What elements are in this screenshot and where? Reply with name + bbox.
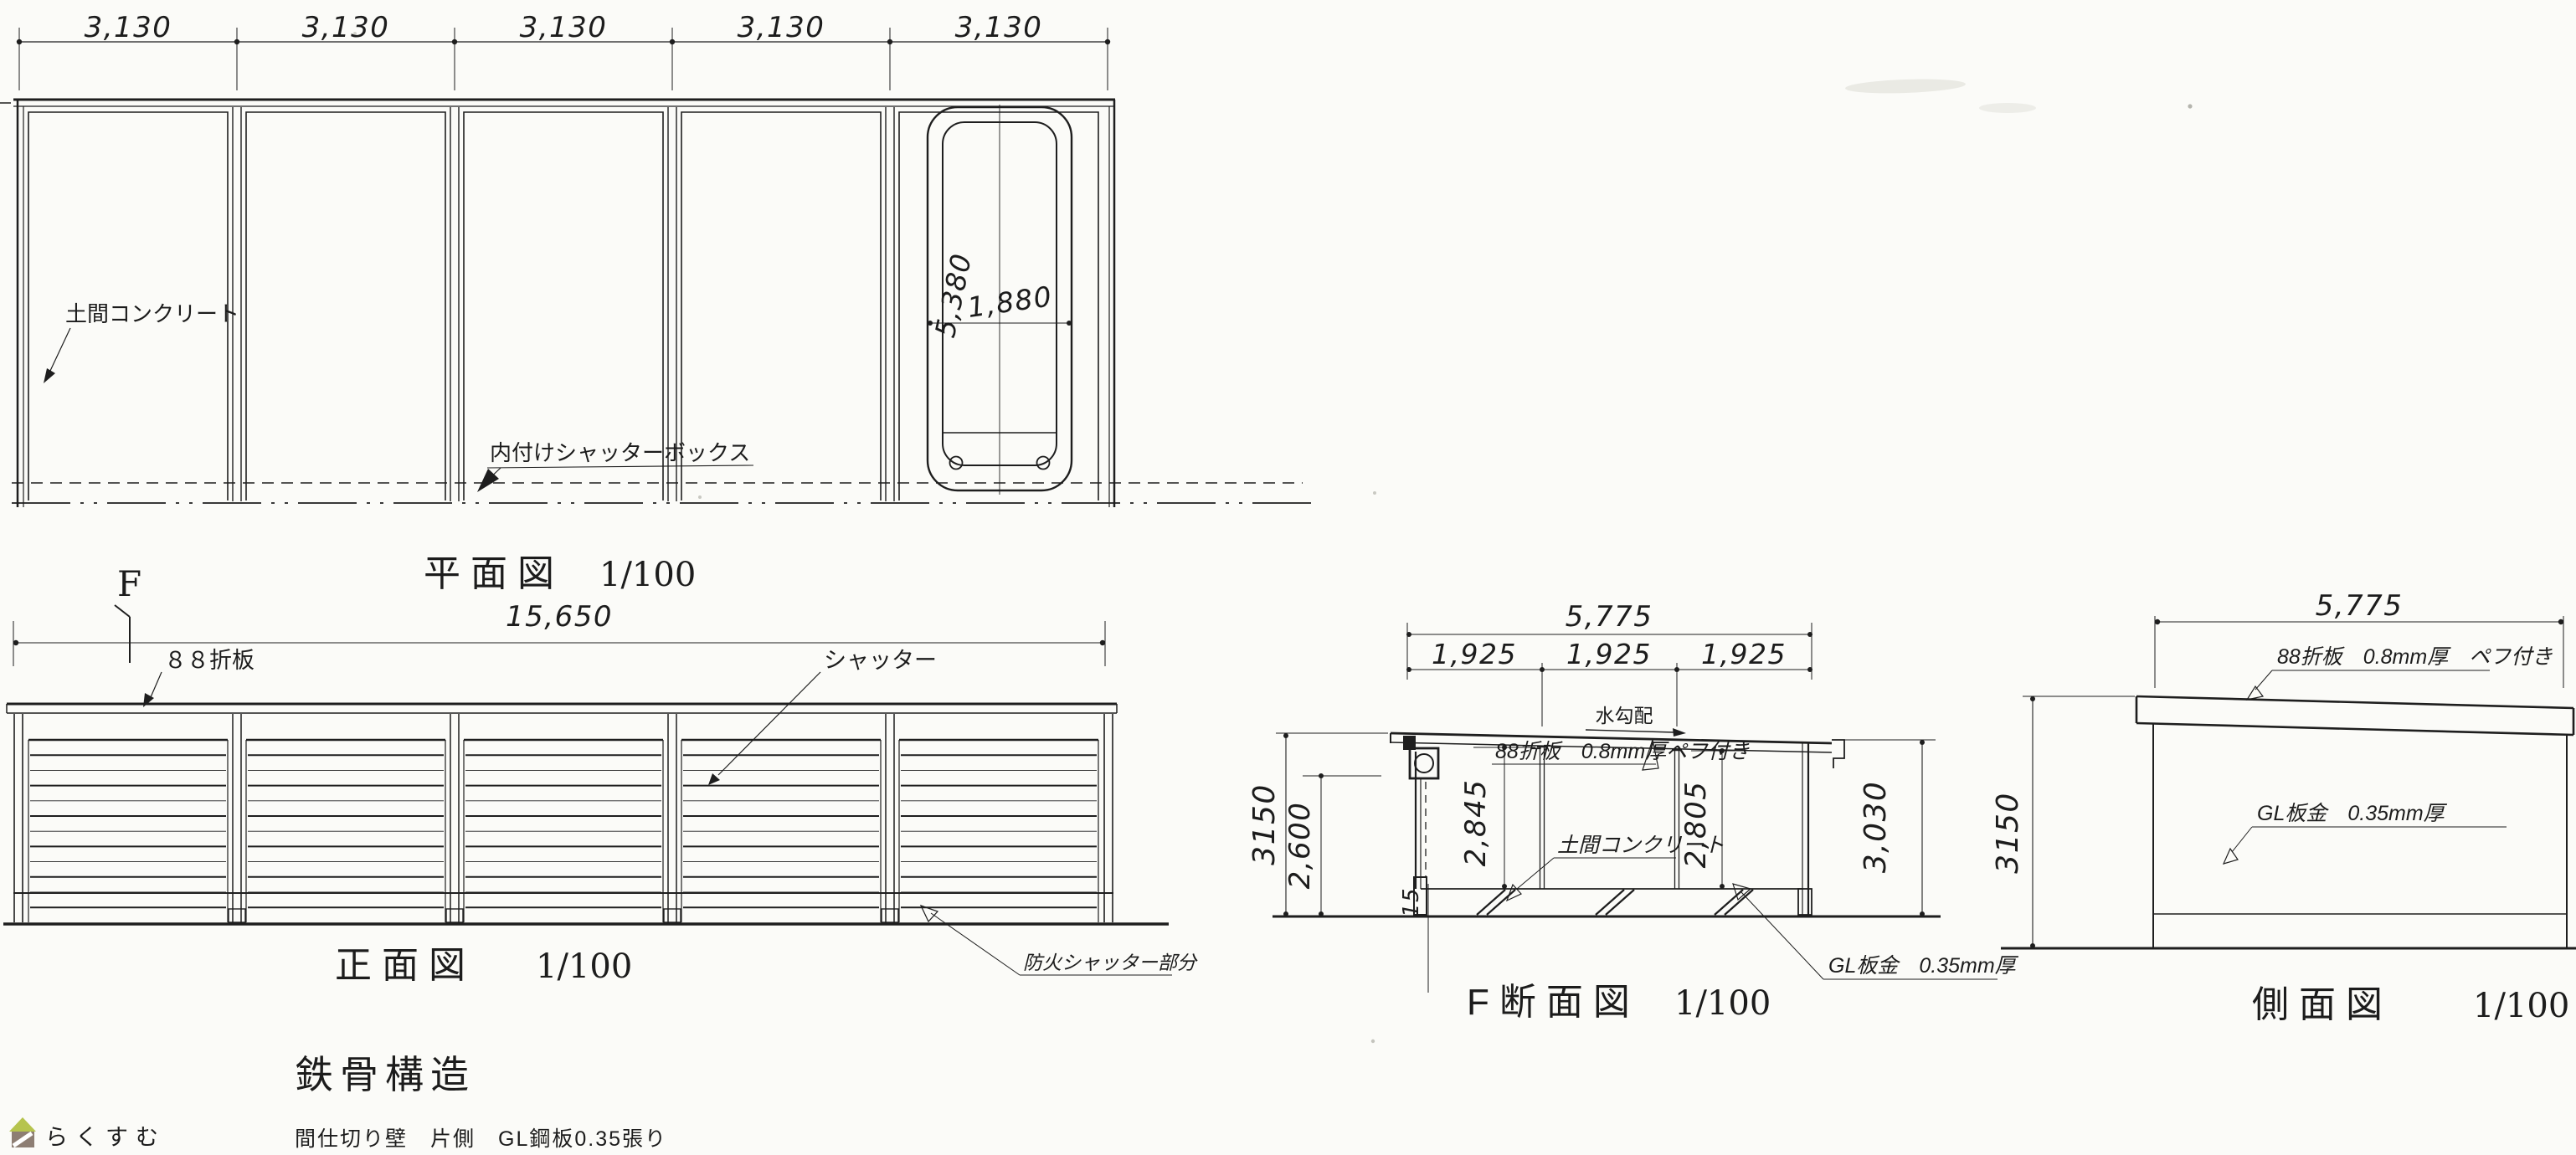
plan-title: 平面図 (424, 553, 564, 594)
section-shutter-box (1410, 748, 1438, 778)
plan-car-outline: 5,380 1,880 (928, 105, 1072, 495)
side-roof-callout: 88折板 0.8mm厚 ペフ付き (2247, 645, 2553, 700)
side-view: 5,775 88折板 0.8mm厚 ペフ付き GL板 (1991, 589, 2576, 1025)
section-roof-label2: ペフ付き (1666, 740, 1750, 763)
plan-bay-dim-1: 3,130 (85, 11, 172, 44)
section-height-outer-left: 3150 (1247, 783, 1282, 865)
front-overall-width: 15,650 (506, 600, 613, 634)
front-shutter-callout: シャッター (708, 648, 937, 785)
plan-slab-callout: 土間コンクリート (44, 301, 239, 383)
section-gutter (1832, 740, 1844, 768)
plan-bay-dim-3: 3,130 (520, 11, 608, 44)
section-mark-letter: F (117, 563, 141, 604)
plan-scale: 1/100 (599, 556, 696, 594)
section-scale: 1/100 (1674, 984, 1771, 1023)
section-interior-dims: 2,845 2,805 (1459, 745, 1753, 889)
side-roof (2136, 696, 2573, 735)
side-height-dim: 3150 (1991, 696, 2135, 948)
notes: 鉄骨構造 間仕切り壁 片側 GL鋼板0.35張り (295, 1053, 667, 1151)
section-roof-callout: 88折板 0.8mm厚 ペフ付き (1492, 740, 1750, 770)
section-left-dims: 3150 2,600 15 (1247, 733, 1428, 993)
side-scale: 1/100 (2473, 987, 2569, 1025)
section-overall-width: 5,775 (1566, 600, 1653, 634)
front-roof-callout: ８８折板 (143, 648, 255, 707)
side-roof-label: 88折板 0.8mm厚 ペフ付き (2277, 645, 2553, 669)
drawing-sheet: 3,130 3,130 3,130 3,130 3,130 (0, 0, 2576, 1155)
section-slab-thickness: 15 (1399, 887, 1424, 917)
front-fire-shutter-callout: 防火シャッター部分 (921, 906, 1198, 975)
section-height-outer-right: 3,030 (1859, 781, 1893, 874)
front-roof-label: ８８折板 (164, 648, 255, 673)
watermark-text: らくすむ (45, 1125, 166, 1150)
plan-shutterbox-label: 内付けシャッターボックス (490, 440, 750, 465)
section-right-wall (1798, 743, 1812, 916)
front-roof (7, 704, 1117, 713)
section-slab-label: 土間コンクリート (1557, 834, 1725, 857)
front-title: 正面図 (335, 945, 476, 986)
car-width-label: 1,880 (965, 280, 1054, 324)
side-dimension: 5,775 (2155, 589, 2563, 688)
side-wall (2153, 723, 2567, 948)
section-height-inner-left: 2,845 (1459, 779, 1493, 867)
front-fire-shutter-label: 防火シャッター部分 (1023, 952, 1198, 973)
section-slope-callout: 水勾配 (1586, 705, 1686, 737)
side-title: 側面図 (2252, 984, 2393, 1025)
section-slab-hatch (1477, 890, 1753, 915)
section-seg-dim-1: 1,925 (1432, 638, 1517, 670)
section-seg-dim-2: 1,925 (1566, 638, 1652, 670)
front-scale: 1/100 (536, 947, 632, 986)
section-right-dim: 3,030 (1833, 740, 1936, 916)
section-view: 5,775 1,925 1,925 1,925 水勾配 (1247, 600, 2019, 1023)
plan-bay-dim-2: 3,130 (302, 11, 390, 44)
front-view: 15,650 ８８折板 シャッター (3, 600, 1198, 986)
partition-note: 間仕切り壁 片側 GL鋼板0.35張り (295, 1127, 667, 1151)
side-overall-width: 5,775 (2316, 589, 2404, 623)
plan-dimension-row: 3,130 3,130 3,130 3,130 3,130 (17, 11, 1110, 90)
structure-note: 鉄骨構造 (295, 1053, 476, 1096)
front-post-foot (229, 909, 245, 922)
front-shutter-label: シャッター (824, 648, 937, 673)
section-height-opening: 2,600 (1283, 802, 1317, 890)
plan-bay-inner-box (246, 112, 445, 501)
section-interior-posts (1537, 747, 1682, 889)
section-wall-label: GL板金 0.35mm厚 (1828, 954, 2019, 978)
section-wall-callout: GL板金 0.35mm厚 (1733, 884, 2019, 979)
section-roof-label: 88折板 0.8mm厚 (1495, 740, 1669, 763)
house-icon (9, 1117, 36, 1132)
section-slope-label: 水勾配 (1596, 705, 1653, 726)
front-post-foot (882, 909, 898, 922)
side-wall-label: GL板金 0.35mm厚 (2257, 802, 2448, 825)
watermark: らくすむ (9, 1117, 166, 1150)
front-shutter-bays (14, 714, 1113, 922)
side-height-label: 3150 (1991, 792, 2025, 874)
front-post-foot (664, 909, 681, 922)
section-title: F断面図 (1467, 982, 1640, 1023)
plan-slab-label: 土間コンクリート (65, 301, 239, 326)
plan-bay-dim-4: 3,130 (738, 11, 825, 44)
plan-shutterbox-callout: 内付けシャッターボックス (477, 440, 753, 492)
plan-view: 3,130 3,130 3,130 3,130 3,130 (0, 11, 1311, 663)
section-seg-dim-3: 1,925 (1701, 638, 1787, 670)
scan-artifacts (353, 32, 2193, 1043)
front-post-foot (446, 909, 463, 922)
plan-bay-dim-5: 3,130 (955, 11, 1043, 44)
plan-section-mark: F (115, 563, 141, 663)
side-wall-callout: GL板金 0.35mm厚 (2224, 802, 2507, 864)
